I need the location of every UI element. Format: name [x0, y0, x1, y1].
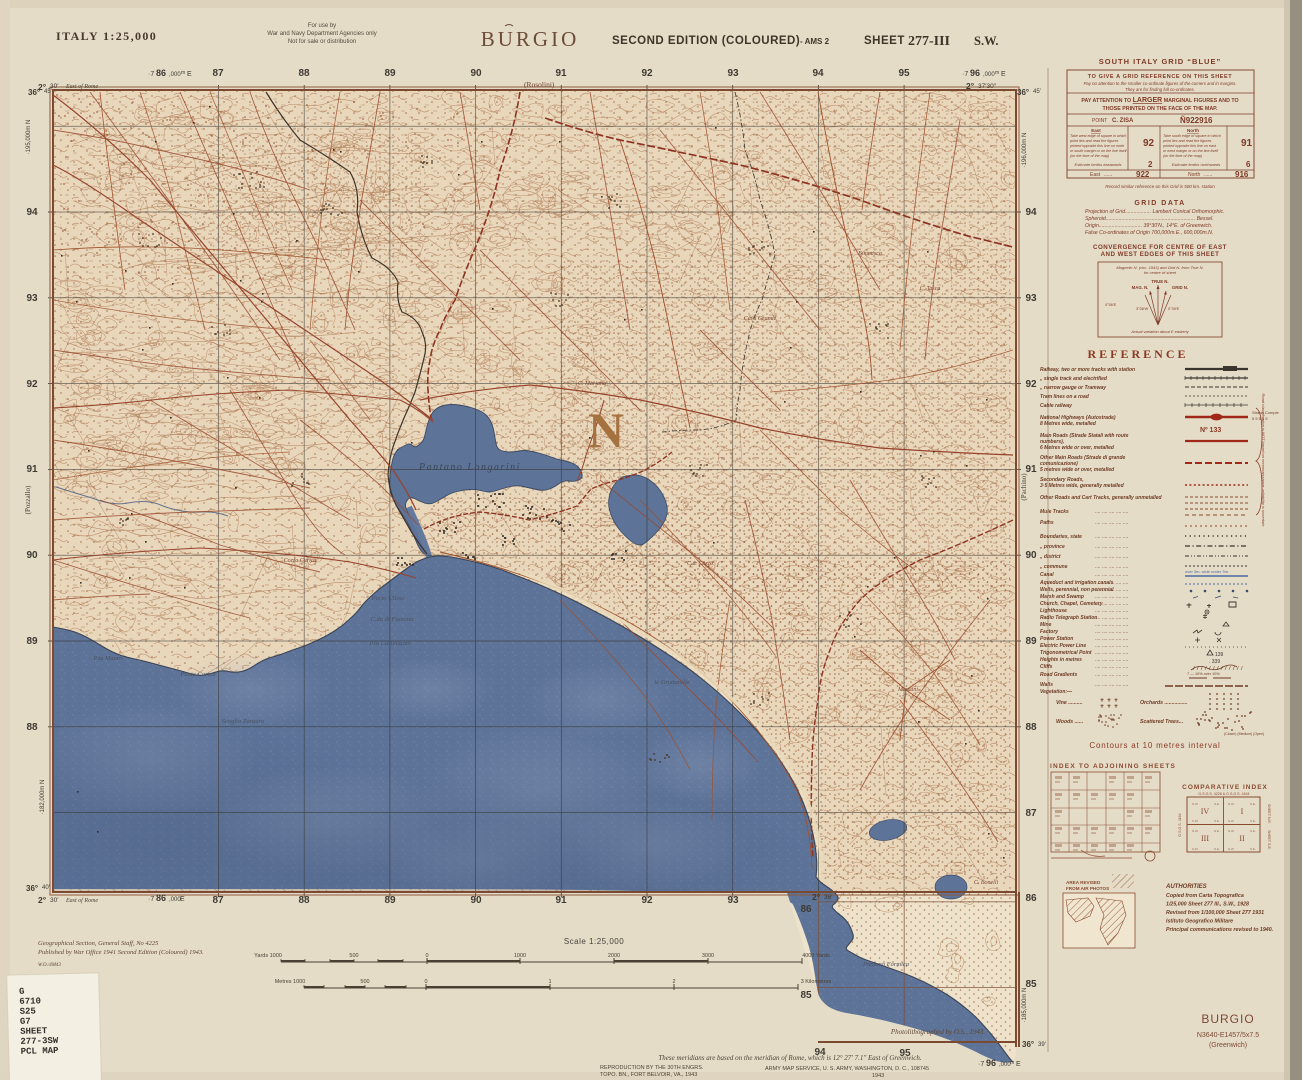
svg-text:Cava Grande: Cava Grande [744, 316, 777, 322]
svg-text:INDEX TO ADJOINING SHEETS: INDEX TO ADJOINING SHEETS [1050, 763, 1176, 770]
svg-text:TO GIVE A GRID REFERENCE ON TH: TO GIVE A GRID REFERENCE ON THIS SHEET [1088, 74, 1233, 80]
svg-text:Revised from 1/100,000 Sheet: Revised from 1/100,000 Sheet 277 1931 [1166, 910, 1264, 916]
svg-text:.... .... .... ....: .... .... .... .... .... [1095, 615, 1128, 621]
svg-text:„ single track and electrif: „ single track and electrified [1039, 376, 1108, 382]
svg-text:7 — 10% over 10%: 7 — 10% over 10% [1187, 672, 1220, 676]
svg-text:AREA REVISED: AREA REVISED [1066, 880, 1101, 885]
svg-text:or west margin or on the line: or west margin or on the line itself [1163, 149, 1219, 153]
svg-text:.... .... .... ....: .... .... .... .... .... [1095, 564, 1128, 570]
svg-text:Published by War Office 1941 S: Published by War Office 1941 Second Edit… [37, 949, 204, 956]
svg-text:Factory: Factory [1040, 629, 1058, 635]
svg-text:P.ta Mauro: P.ta Mauro [93, 655, 124, 662]
svg-text:S.E.: S.E. [1250, 819, 1256, 823]
svg-text:86: 86 [156, 893, 166, 903]
svg-text:91: 91 [1025, 464, 1037, 475]
svg-text:Road Gradients: Road Gradients [1040, 672, 1077, 678]
svg-text:S.E.: S.E. [1214, 819, 1220, 823]
svg-text:1943: 1943 [872, 1073, 884, 1079]
svg-text:90: 90 [26, 550, 38, 561]
svg-text:ARMY MAP SERVICE, U. S. ARMY,: ARMY MAP SERVICE, U. S. ARMY, WASHINGTON… [765, 1066, 929, 1072]
svg-text:,000: ,000 [169, 72, 181, 78]
svg-text:Orchards ................: Orchards ................ [1140, 700, 1188, 706]
svg-text:91: 91 [555, 68, 567, 79]
svg-text:Origin........................: Origin.............................. 39°… [1085, 223, 1212, 229]
svg-text:North: North [1188, 172, 1200, 178]
svg-text:93: 93 [727, 895, 739, 906]
svg-text:91: 91 [555, 895, 567, 906]
svg-text:N.W.: N.W. [1192, 802, 1199, 806]
svg-text:3 Kilometres: 3 Kilometres [801, 979, 832, 985]
svg-text:Vine ..........: Vine .......... [1056, 700, 1083, 706]
svg-text:printed opposite this line on: printed opposite this line on north [1069, 144, 1124, 148]
svg-text:.... .... .... ....: .... .... .... .... .... [1095, 520, 1128, 526]
svg-text:88: 88 [298, 68, 310, 79]
svg-text:3·5 Metres wide, generally met: 3·5 Metres wide, generally metalled [1040, 483, 1125, 489]
svg-text:Metres 1000: Metres 1000 [275, 979, 306, 985]
svg-text:Pantano Formica: Pantano Formica [862, 961, 909, 968]
svg-text:SHEET S.E.: SHEET S.E. [1267, 830, 1271, 850]
svg-text:Paths: Paths [1040, 520, 1054, 526]
svg-text:Boundaries, state: Boundaries, state [1040, 534, 1082, 540]
svg-text:Yards 1000: Yards 1000 [254, 953, 282, 959]
svg-text:Spheroid......................: Spheroid................................… [1085, 216, 1214, 222]
svg-text:S.W.: S.W. [1192, 847, 1199, 851]
svg-text:Walls: Walls [1040, 682, 1053, 688]
svg-text:.... .... .... ....: .... .... .... .... .... [1095, 594, 1128, 600]
svg-text:C. ZISA: C. ZISA [1112, 118, 1134, 124]
svg-text:E: E [1016, 1061, 1021, 1068]
svg-text:C. Tasca: C. Tasca [920, 286, 941, 292]
svg-text:or south margin or on the line: or south margin or on the line itself [1070, 149, 1128, 153]
svg-text:N.W.: N.W. [1192, 829, 1199, 833]
svg-text:m: m [1010, 1060, 1014, 1066]
svg-text:THOSE PRINTED ON THE FACE OF T: THOSE PRINTED ON THE FACE OF THE MAP. [1103, 106, 1218, 112]
svg-text:N3640-E1457/5x7.5: N3640-E1457/5x7.5 [1197, 1032, 1259, 1039]
svg-text:Photolithographed by O.S., 194: Photolithographed by O.S., 1943. [890, 1028, 986, 1036]
svg-text:.... .... .... ....: .... .... .... .... .... [1095, 544, 1128, 550]
svg-text:·7: ·7 [148, 71, 154, 78]
svg-text:FROM AIR PHOTOS: FROM AIR PHOTOS [1066, 886, 1109, 891]
svg-text:94: 94 [26, 207, 38, 218]
svg-text:point lies and read the figure: point lies and read the figures [1162, 139, 1212, 143]
svg-text:Projection of Grid............: Projection of Grid.................. Lam… [1085, 209, 1225, 215]
svg-text:Canal: Canal [1040, 572, 1054, 578]
svg-text:- AMS 2: - AMS 2 [800, 37, 830, 46]
svg-text:S.E.: S.E. [1250, 847, 1256, 851]
svg-text:Pantano Longarini: Pantano Longarini [418, 462, 521, 473]
svg-text:POINT: POINT [1092, 118, 1107, 124]
svg-text:War and Navy Department Agenci: War and Navy Department Agencies only [267, 31, 377, 37]
svg-text:E: E [1001, 71, 1006, 78]
svg-text:91: 91 [26, 464, 38, 475]
svg-text:86: 86 [1025, 893, 1037, 904]
svg-text:.... .... .... ....: .... .... .... .... .... [1095, 682, 1128, 688]
svg-text:96: 96 [970, 68, 980, 78]
svg-text:TRUE N.: TRUE N. [1151, 279, 1168, 284]
svg-text:87: 87 [1025, 808, 1037, 819]
svg-text:Woods ......: Woods ...... [1056, 719, 1083, 725]
svg-text:W.O./4M43: W.O./4M43 [38, 963, 61, 968]
svg-text:.... .... .... ....: .... .... .... .... .... [1095, 643, 1128, 649]
svg-text:N.E.: N.E. [1214, 802, 1220, 806]
svg-text:m: m [995, 70, 999, 76]
svg-text:96: 96 [986, 1058, 996, 1068]
svg-text:92: 92 [1143, 138, 1155, 149]
svg-text:36°: 36° [26, 884, 38, 893]
svg-text:89: 89 [1025, 636, 1037, 647]
svg-text:92: 92 [641, 68, 653, 79]
svg-text:SECOND EDITION (COLOURED): SECOND EDITION (COLOURED) [612, 35, 800, 47]
svg-text:0°39′E: 0°39′E [1168, 307, 1180, 311]
svg-text:N.W.: N.W. [1228, 802, 1235, 806]
svg-text:40′: 40′ [42, 885, 51, 891]
svg-text:30′: 30′ [50, 897, 59, 904]
svg-text:North: North [1187, 128, 1199, 133]
svg-text:916: 916 [1235, 170, 1249, 179]
svg-text:S.E.: S.E. [1214, 847, 1220, 851]
svg-text:0: 0 [425, 953, 428, 959]
svg-text:277-III: 277-III [908, 34, 950, 49]
svg-text:Mule Tracks: Mule Tracks [1040, 509, 1069, 515]
svg-text:S.W.: S.W. [1192, 819, 1199, 823]
svg-text:Trigonometrical Point: Trigonometrical Point [1040, 650, 1092, 656]
svg-text:3000: 3000 [702, 953, 714, 959]
svg-text:SHEET: SHEET [20, 1026, 48, 1037]
svg-text:87: 87 [212, 68, 224, 79]
svg-text:Mine: Mine [1040, 622, 1052, 628]
svg-text:(on the face of the map): (on the face of the map) [1070, 154, 1110, 158]
svg-text:AND WEST EDGES OF THIS SHEET: AND WEST EDGES OF THIS SHEET [1101, 251, 1220, 258]
svg-text:GRID DATA: GRID DATA [1134, 200, 1185, 207]
svg-text:Scoglio Zanzaro: Scoglio Zanzaro [222, 718, 265, 725]
svg-text:8 Metres wide, metalled: 8 Metres wide, metalled [1040, 421, 1097, 427]
svg-text:86: 86 [156, 68, 166, 78]
svg-text:Copied from Carta Topografica: Copied from Carta Topografica [1166, 893, 1244, 899]
svg-text:45′: 45′ [1033, 89, 1042, 95]
svg-text:139: 139 [1215, 652, 1224, 658]
svg-text:·195,000m N: ·195,000m N [26, 120, 32, 155]
svg-text:le Grottarelle: le Grottarelle [654, 679, 689, 686]
svg-text:2°: 2° [966, 81, 975, 91]
svg-text:5 metres wide or over, metalle: 5 metres wide or over, metalled [1040, 467, 1115, 473]
svg-text:These meridians are based on t: These meridians are based on the meridia… [658, 1054, 921, 1062]
svg-text:37′30″: 37′30″ [978, 83, 997, 90]
svg-text:They are for finding full co-o: They are for finding full co-ordinates. [1125, 87, 1195, 92]
svg-text:500: 500 [349, 953, 358, 959]
svg-text:C.te Cozzo: C.te Cozzo [687, 561, 713, 567]
svg-text:ITALY 1:25,000: ITALY 1:25,000 [56, 29, 157, 43]
svg-text:„ commune: „ commune [1039, 564, 1068, 570]
svg-text:89: 89 [384, 68, 396, 79]
svg-text:Heights in metres: Heights in metres [1040, 657, 1082, 663]
svg-text:„ district: „ district [1039, 554, 1061, 560]
svg-text:93: 93 [1025, 293, 1037, 304]
svg-text:.... .... .... ....: .... .... .... .... .... [1095, 622, 1128, 628]
svg-text:.... .... .... ....: .... .... .... .... .... [1095, 657, 1128, 663]
svg-text:Railway, two or more tracks wi: Railway, two or more tracks with station [1040, 367, 1135, 373]
svg-text:IV: IV [1201, 807, 1210, 816]
svg-text:·7: ·7 [148, 896, 154, 903]
svg-text:N: N [588, 402, 624, 458]
svg-text:93: 93 [26, 293, 38, 304]
svg-text:MAG. N.: MAG. N. [1132, 285, 1149, 290]
svg-text:·185,000m N: ·185,000m N [1022, 988, 1028, 1023]
svg-text:over 3m. wide under 3m.: over 3m. wide under 3m. [1185, 569, 1229, 574]
svg-text:3°08′W: 3°08′W [1136, 307, 1149, 311]
svg-text:Vegetation:—: Vegetation:— [1040, 689, 1073, 695]
svg-text:90: 90 [470, 895, 482, 906]
svg-text:500: 500 [360, 979, 369, 985]
svg-text:SHEET: SHEET [864, 35, 905, 47]
svg-text:P.to Castellazzo: P.to Castellazzo [368, 640, 411, 647]
svg-text:For use by: For use by [308, 23, 336, 29]
svg-text:N.E.: N.E. [1250, 802, 1256, 806]
svg-text:......: ...... [1104, 172, 1112, 178]
svg-text:93: 93 [727, 68, 739, 79]
svg-text:G.S.G.S. 4228 & G.S.G.S. 416: G.S.G.S. 4228 & G.S.G.S. 4164 [1198, 792, 1249, 796]
svg-text:36′: 36′ [824, 894, 833, 901]
svg-text:S25: S25 [20, 1006, 36, 1016]
svg-text:(Greenwich): (Greenwich) [1209, 1042, 1247, 1049]
svg-text:.... .... .... ....: .... .... .... .... .... [1095, 580, 1128, 586]
svg-text:East: East [1090, 172, 1101, 178]
svg-text:95: 95 [898, 68, 910, 79]
svg-text:88: 88 [1025, 722, 1037, 733]
svg-text:CONVERGENCE FOR CENTRE OF EAST: CONVERGENCE FOR CENTRE OF EAST [1093, 244, 1227, 251]
svg-text:E: E [187, 71, 192, 78]
svg-text:Tram lines on a road: Tram lines on a road [1040, 394, 1090, 400]
svg-text:·7: ·7 [978, 1061, 984, 1068]
svg-text:BURGIO: BURGIO [481, 27, 580, 51]
svg-text:Actual variation about E easte: Actual variation about E easterly [1130, 329, 1189, 334]
svg-text:(Pachino): (Pachino) [1020, 473, 1028, 501]
svg-text:.... .... .... ....: .... .... .... .... .... [1095, 664, 1128, 670]
svg-text:Ñ922916: Ñ922916 [1180, 116, 1213, 125]
svg-text:m: m [181, 70, 185, 76]
svg-text:Take west edge of square in wh: Take west edge of square in which [1070, 134, 1126, 138]
svg-text:2: 2 [672, 979, 675, 985]
svg-text:·196,000m N: ·196,000m N [1022, 133, 1028, 168]
svg-text:(Pozzallo): (Pozzallo) [24, 485, 32, 514]
svg-text:GRID N.: GRID N. [1172, 285, 1188, 290]
svg-text:1/25,000 Sheet 277 III., S.W: 1/25,000 Sheet 277 III., S.W., 1928 [1166, 902, 1249, 908]
svg-text:Bimmisca: Bimmisca [858, 251, 882, 257]
svg-text:Cable railway: Cable railway [1040, 403, 1072, 409]
svg-text:Principal communications revis: Principal communications revised to 1940… [1166, 927, 1274, 933]
svg-text:Istituto Geografico Militare: Istituto Geografico Militare [1166, 919, 1233, 925]
svg-text:Porto Ulisse: Porto Ulisse [371, 595, 405, 602]
svg-text:2°: 2° [812, 892, 821, 902]
svg-text:92: 92 [641, 895, 653, 906]
svg-text:Road classification is NOT bas: Road classification is NOT based on reco… [1261, 394, 1266, 528]
svg-text:922: 922 [1136, 170, 1150, 179]
svg-text:REPRODUCTION BY THE 30TH ENGRS: REPRODUCTION BY THE 30TH ENGRS. [600, 1065, 704, 1071]
svg-text:Not for sale or distribution: Not for sale or distribution [288, 39, 356, 45]
svg-text:G.S.G.S. 4164: G.S.G.S. 4164 [1178, 813, 1182, 836]
svg-text:.... .... .... ....: .... .... .... .... .... [1095, 554, 1128, 560]
svg-text:0: 0 [424, 979, 427, 985]
svg-text:.... .... .... ....: .... .... .... .... .... [1095, 601, 1128, 607]
svg-text:2000: 2000 [608, 953, 620, 959]
svg-text:Geographical Section, General: Geographical Section, General Staff, No … [38, 940, 159, 947]
svg-text:0°56′E: 0°56′E [1105, 303, 1117, 307]
svg-text:N.E.: N.E. [1214, 829, 1220, 833]
svg-text:.... .... .... ....: .... .... .... .... .... [1095, 509, 1128, 515]
svg-text:Electric Power Line: Electric Power Line [1040, 643, 1086, 649]
svg-text:86: 86 [800, 904, 812, 915]
svg-text:point lies and read the figure: point lies and read the figures [1069, 139, 1119, 143]
svg-text:E: E [180, 896, 185, 903]
svg-text:S.W.: S.W. [1228, 819, 1235, 823]
svg-text:92: 92 [1025, 379, 1037, 390]
svg-text:.... .... .... ....: .... .... .... .... .... [1095, 650, 1128, 656]
svg-text:. 339: . 339 [1209, 659, 1220, 665]
svg-text:.... .... .... ....: .... .... .... .... .... [1095, 572, 1128, 578]
svg-text:S.W.: S.W. [974, 34, 999, 48]
svg-text:2°: 2° [38, 895, 47, 905]
svg-text:BURGIO: BURGIO [1201, 1012, 1254, 1026]
svg-text:C.da di Pianona: C.da di Pianona [371, 616, 414, 623]
svg-text:SHEET N.E.: SHEET N.E. [1267, 804, 1271, 824]
svg-text:TOPO. BN., FORT BELVOIR, VA.,: TOPO. BN., FORT BELVOIR, VA., 1943 [600, 1072, 697, 1078]
svg-text:90: 90 [470, 68, 482, 79]
svg-text:.... .... .... ....: .... .... .... .... .... [1095, 587, 1128, 593]
svg-text:SOUTH ITALY GRID “BLUE”: SOUTH ITALY GRID “BLUE” [1099, 57, 1221, 66]
svg-text:Take south edge of square in w: Take south edge of square in which [1163, 134, 1221, 138]
svg-text:Other Roads and Cart Tracks, g: Other Roads and Cart Tracks, generally u… [1040, 495, 1163, 501]
svg-text:East of Rome: East of Rome [65, 897, 98, 904]
svg-text:I: I [1241, 807, 1244, 816]
svg-text:39′: 39′ [1038, 1042, 1047, 1048]
svg-text:False Co-ordinates of Origin 7: False Co-ordinates of Origin 700,000m.E.… [1085, 230, 1213, 236]
svg-text:.... .... .... ....: .... .... .... .... .... [1095, 629, 1128, 635]
svg-text:S.W.: S.W. [1228, 847, 1235, 851]
svg-text:Scattered Trees...: Scattered Trees... [1140, 719, 1183, 725]
svg-text:East of Rome: East of Rome [65, 83, 98, 90]
svg-text:89: 89 [26, 636, 38, 647]
svg-text:85: 85 [800, 990, 812, 1001]
svg-text:Marsh and Swamp: Marsh and Swamp [1040, 594, 1084, 600]
svg-text:C. Mariana: C. Mariana [578, 381, 606, 387]
svg-text:G7: G7 [20, 1017, 31, 1027]
svg-text:89: 89 [384, 895, 396, 906]
svg-text:92: 92 [26, 379, 38, 390]
svg-text:6 Metres wide or over, metalle: 6 Metres wide or over, metalled [1040, 445, 1115, 451]
svg-text:Punta Carica: Punta Carica [179, 671, 215, 678]
svg-text:.... .... .... ....: .... .... .... .... .... [1095, 636, 1128, 642]
svg-text:PAY ATTENTION TO LARGER MARGIN: PAY ATTENTION TO LARGER MARGINAL FIGURES… [1081, 97, 1238, 104]
svg-text:Nº 133: Nº 133 [1200, 427, 1221, 434]
svg-text:(on the face of the map): (on the face of the map) [1163, 154, 1203, 158]
svg-text:87: 87 [212, 895, 224, 906]
svg-text:COMPARATIVE INDEX: COMPARATIVE INDEX [1182, 784, 1268, 791]
svg-text:6710: 6710 [19, 996, 41, 1007]
svg-text:N.W.: N.W. [1228, 829, 1235, 833]
svg-text:Church, Chapel, Cemetery: Church, Chapel, Cemetery [1040, 601, 1103, 607]
svg-text:III: III [1201, 834, 1209, 843]
svg-text:,000: ,000 [983, 72, 995, 78]
svg-text:(Rosolini): (Rosolini) [524, 80, 555, 89]
svg-text:Pay no attention to the smalle: Pay no attention to the smaller co-ordin… [1084, 81, 1237, 86]
svg-text:Contours at 10 metres interval: Contours at 10 metres interval [1089, 741, 1220, 750]
svg-text:Cliffs: Cliffs [1040, 664, 1053, 670]
svg-text:36°: 36° [1022, 1040, 1034, 1049]
svg-text:45′: 45′ [44, 89, 53, 95]
svg-text:East: East [1091, 128, 1101, 133]
svg-text:88: 88 [298, 895, 310, 906]
svg-text:.... .... .... ....: .... .... .... .... .... [1095, 608, 1128, 614]
svg-text:Radio Telegraph Station: Radio Telegraph Station [1040, 615, 1097, 621]
svg-text:G: G [19, 987, 25, 997]
svg-text:Estimate tenths eastwards: Estimate tenths eastwards [1075, 162, 1122, 167]
svg-text:Power Station: Power Station [1040, 636, 1073, 642]
svg-text:REFERENCE: REFERENCE [1087, 347, 1188, 361]
svg-text:88: 88 [26, 722, 38, 733]
svg-text:·182,000m N: ·182,000m N [40, 780, 46, 815]
svg-text:II: II [1239, 834, 1245, 843]
svg-text:(Closer) (Medium) (Open): (Closer) (Medium) (Open) [1224, 732, 1264, 736]
svg-text:2: 2 [1148, 160, 1153, 169]
svg-text:printed opposite this line on: printed opposite this line on east [1162, 144, 1217, 148]
svg-text:1000: 1000 [514, 953, 526, 959]
svg-text:Maucini: Maucini [897, 687, 918, 693]
svg-text:94: 94 [1025, 207, 1037, 218]
svg-text:4000 Yards: 4000 Yards [802, 953, 830, 959]
svg-text:Cozzo Carica: Cozzo Carica [284, 558, 317, 564]
svg-text:90: 90 [1025, 550, 1037, 561]
svg-text:„ narrow gauge or Tramway: „ narrow gauge or Tramway [1039, 385, 1106, 391]
svg-text:for centre of sheet: for centre of sheet [1144, 270, 1177, 275]
svg-text:36°: 36° [28, 88, 40, 97]
svg-text:94: 94 [812, 68, 824, 79]
svg-text:„ province: „ province [1039, 544, 1065, 550]
svg-text:.... .... .... ....: .... .... .... .... .... [1095, 534, 1128, 540]
svg-text:1: 1 [548, 979, 551, 985]
svg-text:Estimate tenths northwards: Estimate tenths northwards [1172, 162, 1220, 167]
svg-text:N.E.: N.E. [1250, 829, 1256, 833]
svg-text:91: 91 [1241, 138, 1253, 149]
svg-text:.... .... .... ....: .... .... .... .... .... [1095, 672, 1128, 678]
svg-text:Record similar reference on th: Record similar reference on this Grid is… [1105, 184, 1215, 189]
svg-text:6: 6 [1246, 160, 1251, 169]
svg-text:Lighthouse: Lighthouse [1040, 608, 1067, 614]
svg-text:PCL MAP: PCL MAP [21, 1046, 60, 1057]
svg-text:36°: 36° [1017, 88, 1029, 97]
svg-text:Scale 1:25,000: Scale 1:25,000 [564, 937, 624, 946]
svg-text:C. Bonelli: C. Bonelli [974, 880, 999, 886]
svg-text:AUTHORITIES: AUTHORITIES [1165, 884, 1207, 890]
svg-text:......: ...... [1204, 172, 1212, 178]
svg-text:·7: ·7 [962, 71, 968, 78]
